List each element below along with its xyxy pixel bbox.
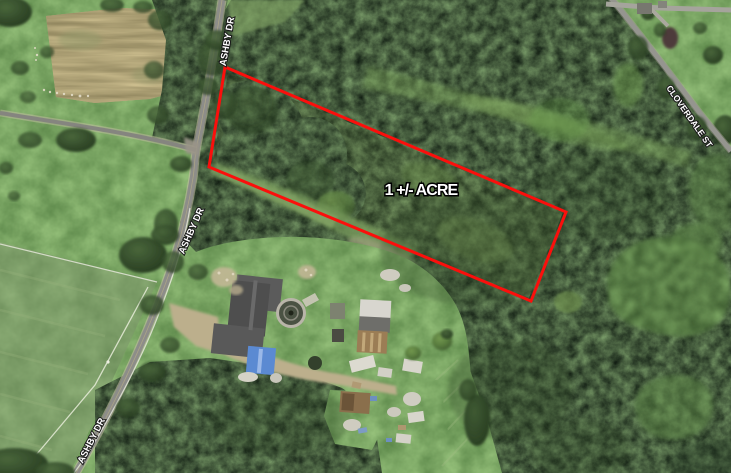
svg-text:1 +/- ACRE: 1 +/- ACRE	[385, 182, 459, 199]
